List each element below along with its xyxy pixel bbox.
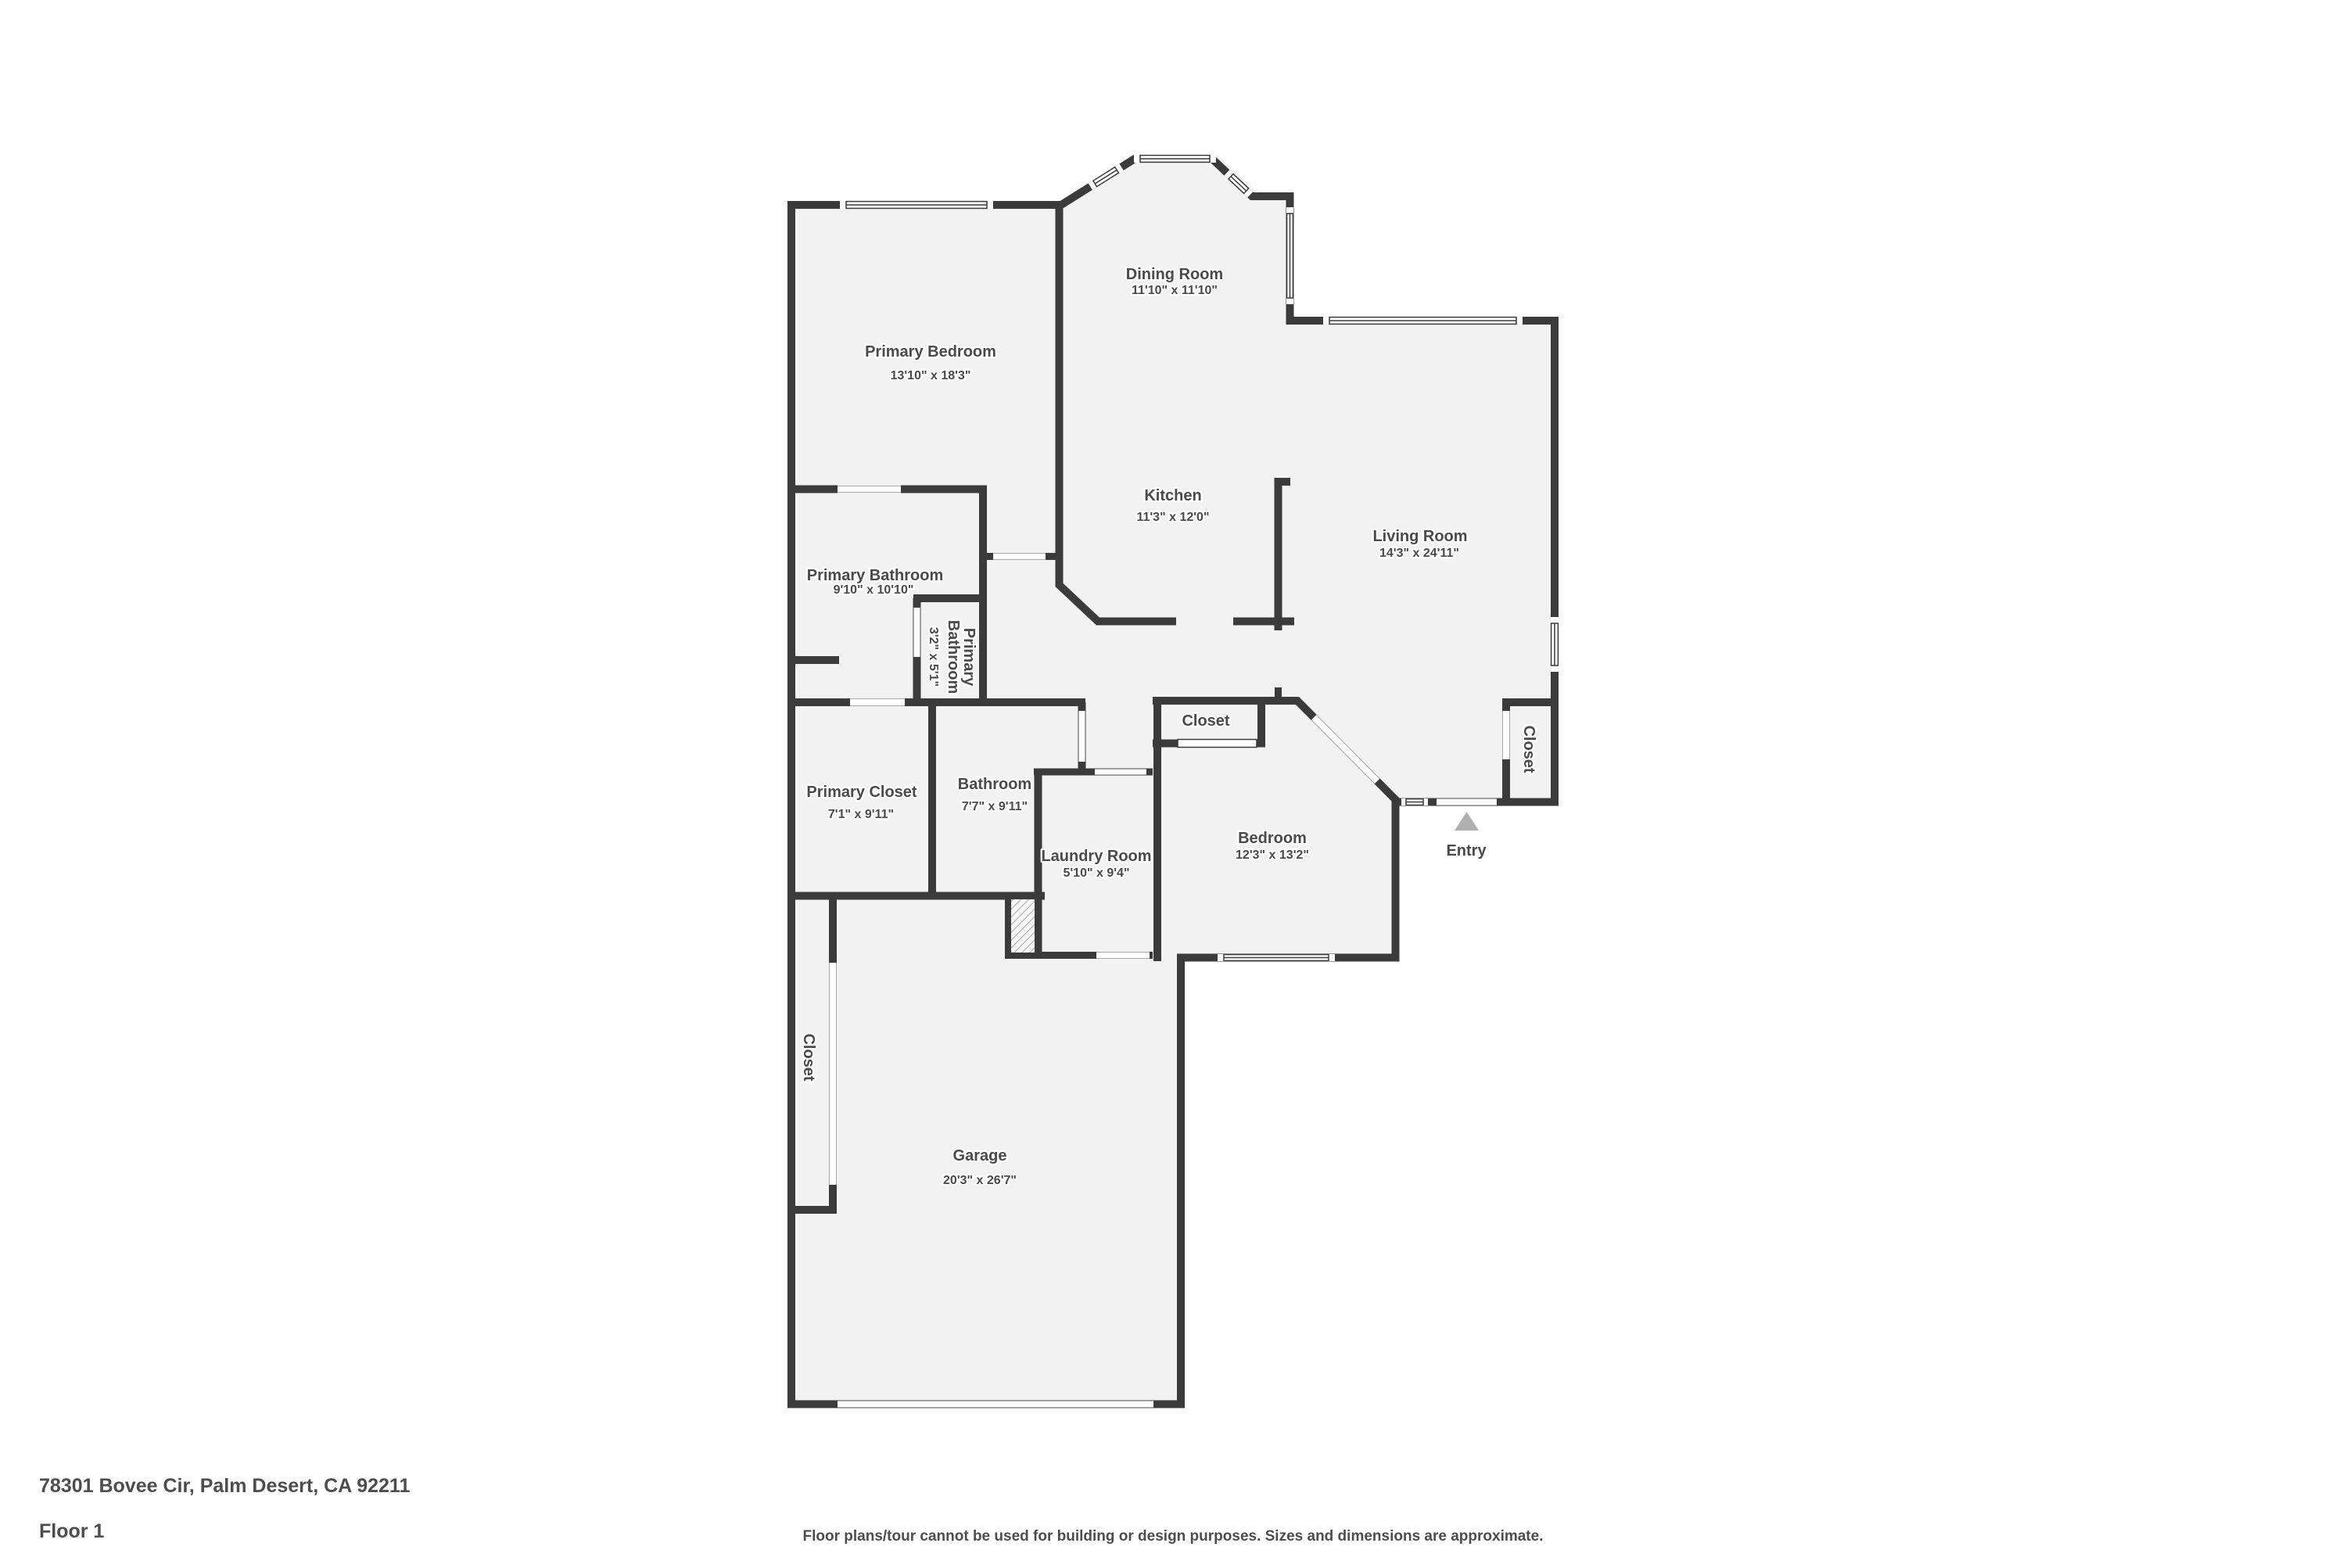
svg-text:7'7" x 9'11": 7'7" x 9'11" [962, 800, 1028, 813]
svg-text:Kitchen: Kitchen [1144, 487, 1201, 504]
svg-text:Bathroom: Bathroom [958, 776, 1031, 793]
svg-text:12'3" x 13'2": 12'3" x 13'2" [1236, 849, 1309, 862]
svg-text:Closet: Closet [800, 1033, 817, 1081]
svg-text:9'10" x 10'10": 9'10" x 10'10" [834, 583, 914, 597]
svg-text:Primary: Primary [960, 628, 977, 687]
svg-text:13'10" x 18'3": 13'10" x 18'3" [891, 369, 971, 382]
svg-text:Living Room: Living Room [1372, 528, 1467, 545]
svg-text:Closet: Closet [1520, 725, 1537, 773]
svg-text:Dining Room: Dining Room [1126, 266, 1223, 283]
svg-text:Garage: Garage [953, 1147, 1007, 1164]
svg-text:Floor plans/tour cannot be use: Floor plans/tour cannot be used for buil… [803, 1528, 1544, 1545]
svg-text:Primary Closet: Primary Closet [806, 784, 917, 801]
svg-text:Primary Bathroom: Primary Bathroom [807, 567, 944, 584]
svg-text:Floor 1: Floor 1 [39, 1520, 104, 1542]
svg-text:Closet: Closet [1182, 712, 1229, 730]
svg-text:Laundry Room: Laundry Room [1041, 848, 1151, 865]
svg-text:Primary Bedroom: Primary Bedroom [865, 343, 996, 361]
svg-text:Bedroom: Bedroom [1238, 830, 1307, 847]
svg-text:11'10" x 11'10": 11'10" x 11'10" [1132, 284, 1218, 297]
svg-text:7'1" x 9'11": 7'1" x 9'11" [828, 808, 894, 821]
svg-text:Bathroom: Bathroom [945, 620, 962, 694]
svg-text:78301 Bovee Cir, Palm Desert,: 78301 Bovee Cir, Palm Desert, CA 92211 [39, 1475, 410, 1497]
svg-text:3'2" x 5'1": 3'2" x 5'1" [927, 627, 940, 687]
svg-text:11'3" x 12'0": 11'3" x 12'0" [1136, 511, 1209, 524]
svg-text:14'3" x 24'11": 14'3" x 24'11" [1379, 547, 1459, 560]
svg-text:20'3" x 26'7": 20'3" x 26'7" [943, 1174, 1017, 1187]
svg-text:Entry: Entry [1446, 842, 1487, 859]
svg-text:5'10" x 9'4": 5'10" x 9'4" [1063, 867, 1129, 880]
